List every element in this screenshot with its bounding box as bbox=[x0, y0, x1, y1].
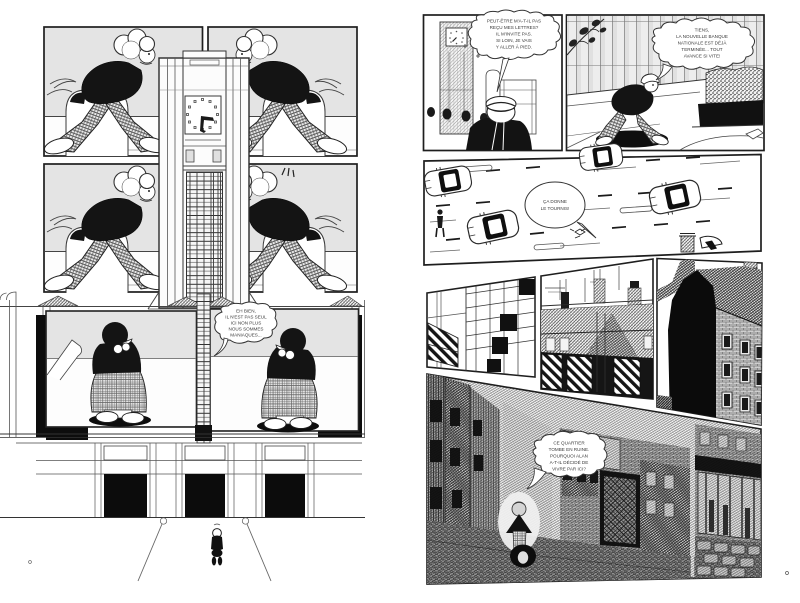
svg-text:TOMBE EN RUINE.: TOMBE EN RUINE. bbox=[549, 447, 590, 452]
svg-text:IL N'EST PAS SEUL: IL N'EST PAS SEUL bbox=[225, 315, 267, 320]
svg-text:NOUS SOMMES: NOUS SOMMES bbox=[229, 327, 264, 332]
svg-text:AVANCE SI VITE!: AVANCE SI VITE! bbox=[684, 54, 721, 59]
svg-text:NATIONALE EST DÉJÀ: NATIONALE EST DÉJÀ bbox=[678, 40, 728, 46]
svg-text:A-T-IL DÉCIDÉ DE: A-T-IL DÉCIDÉ DE bbox=[550, 459, 589, 465]
svg-text:TERMINÉE... TOUT: TERMINÉE... TOUT bbox=[681, 46, 722, 52]
svg-text:LE TOURNIS!: LE TOURNIS! bbox=[541, 206, 570, 211]
svg-text:ÇA DONNE: ÇA DONNE bbox=[543, 199, 567, 204]
svg-text:REÇU MES LETTRES?: REÇU MES LETTRES? bbox=[490, 25, 539, 30]
svg-text:PEUT-ÊTRE M'A-T-IL PAS: PEUT-ÊTRE M'A-T-IL PAS bbox=[487, 17, 541, 24]
svg-text:TIENS,: TIENS, bbox=[695, 28, 710, 33]
svg-text:ICI NON PLUS: ICI NON PLUS bbox=[231, 321, 262, 326]
svg-text:SI LOIN, JE VAIS: SI LOIN, JE VAIS bbox=[496, 38, 532, 43]
svg-text:IL M'INVITE PAS.: IL M'INVITE PAS. bbox=[496, 32, 532, 37]
svg-text:VIVRE PAR ICI?: VIVRE PAR ICI? bbox=[552, 467, 586, 472]
svg-text:POURQUOI ALAN: POURQUOI ALAN bbox=[550, 454, 588, 459]
svg-text:MANIAQUES...: MANIAQUES... bbox=[230, 333, 261, 338]
svg-text:LA NOUVELLE BANQUE: LA NOUVELLE BANQUE bbox=[676, 34, 728, 39]
svg-text:Y ALLER À PIED.: Y ALLER À PIED. bbox=[496, 44, 532, 50]
svg-text:EH BIEN,: EH BIEN, bbox=[236, 309, 256, 314]
svg-text:CE QUARTIER: CE QUARTIER bbox=[553, 441, 585, 446]
